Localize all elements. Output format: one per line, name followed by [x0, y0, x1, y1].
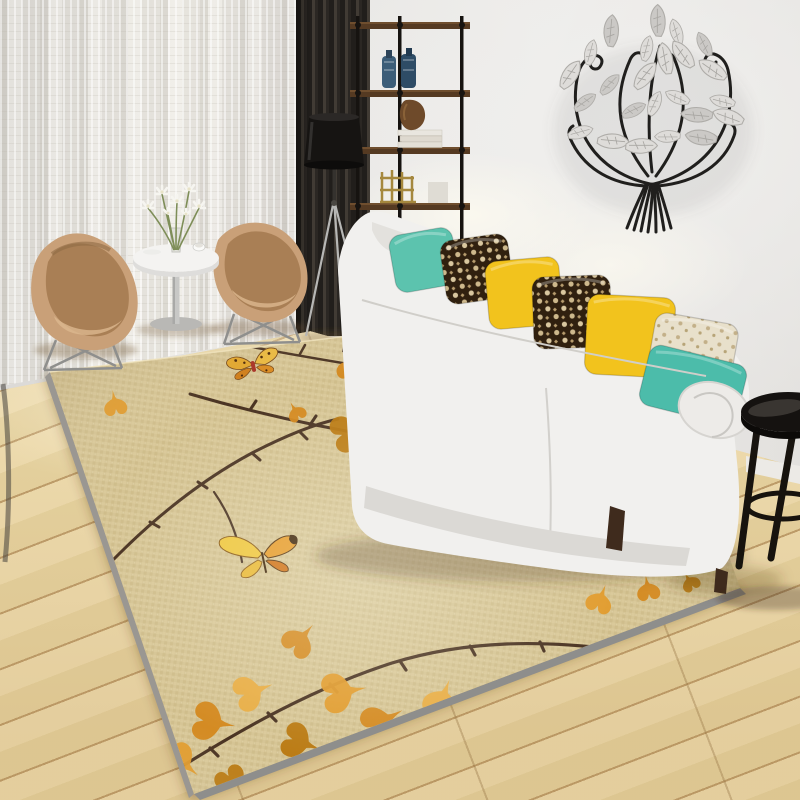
coffee-table: [133, 183, 219, 331]
small-dish: [143, 249, 161, 254]
silver-leaf: [649, 4, 667, 37]
sofa-right-leg: [714, 568, 728, 594]
ginkgo-leaf: [686, 623, 716, 654]
ginkgo-leaf: [459, 759, 508, 800]
rug-branch: [604, 656, 724, 757]
silver-leaf: [601, 14, 621, 48]
window-frame-edge: [3, 384, 9, 562]
tea-cup: [193, 243, 205, 251]
ginkgo-leaf: [602, 677, 645, 720]
sofa: [315, 212, 783, 594]
shelf-white-box: [428, 182, 448, 203]
side-table-ring: [747, 493, 800, 519]
flower-vase: [142, 183, 205, 252]
silver-leaf: [668, 18, 684, 45]
ginkgo-leaf: [649, 644, 675, 673]
seating-corner: [31, 183, 307, 370]
ginkgo-leaf: [527, 672, 558, 705]
ginkgo-leaf: [479, 698, 525, 743]
lily-flowers: [142, 183, 205, 215]
shelf-books: [398, 130, 442, 148]
ginkgo-leaf: [403, 742, 447, 782]
metal-leaf-tree-wall-art: [553, 4, 753, 232]
living-room-scene: [0, 0, 800, 800]
silver-leaf: [694, 30, 714, 58]
side-table-legs: [739, 428, 800, 566]
ginkgo-leaf: [542, 721, 586, 763]
